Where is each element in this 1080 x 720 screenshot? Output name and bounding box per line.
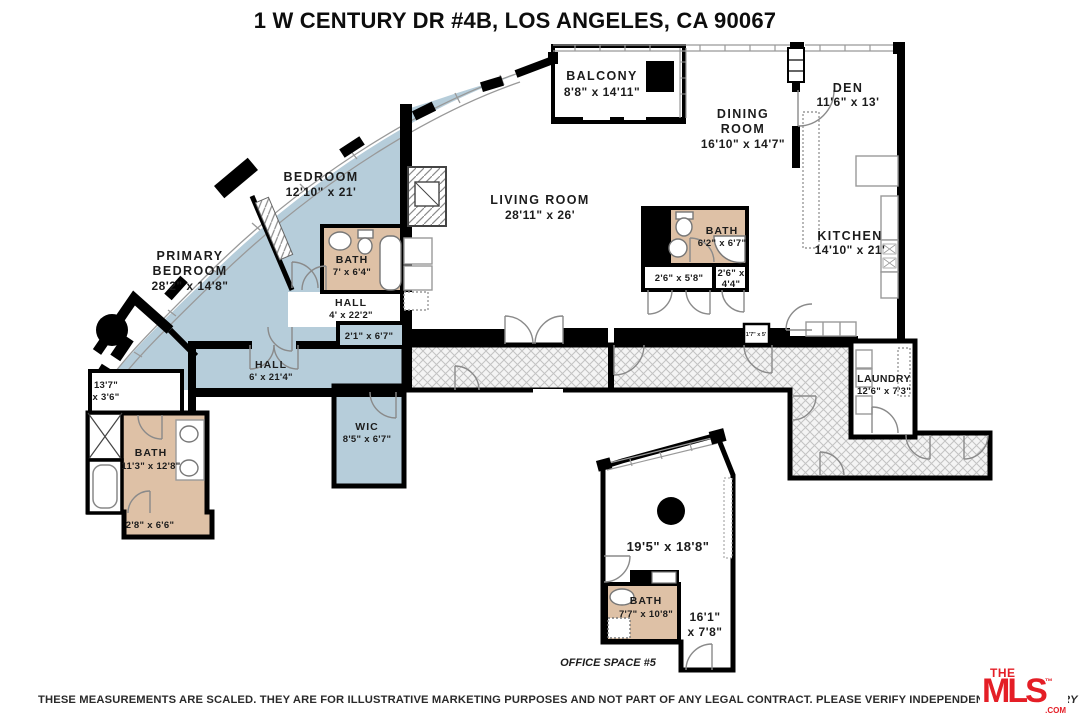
primary-bedroom-label-1: PRIMARY (157, 249, 224, 263)
office-side-dims-2: x 7'8" (688, 625, 723, 639)
bathtub-icon (380, 236, 401, 290)
disclaimer-text: THESE MEASUREMENTS ARE SCALED. THEY ARE … (38, 694, 1007, 706)
office-bath-label: BATH (630, 595, 662, 607)
sink-icon (180, 426, 198, 442)
bath-center-dims: 6'2" x 6'7" (698, 238, 747, 249)
office-bath-dims: 7'7" x 10'8" (619, 609, 673, 620)
bath-center-label: BATH (706, 225, 738, 237)
shower-icon (608, 618, 630, 638)
hall-upper-label: HALL (335, 297, 367, 309)
hall-lower-label: HALL (255, 359, 287, 371)
sink-icon (180, 460, 198, 476)
balcony-column (646, 61, 674, 92)
kitchen-label: KITCHEN (817, 229, 882, 243)
wic-dims: 8'5" x 6'7" (343, 434, 392, 445)
bath-lower-dims: 11'3" x 12'8" (121, 461, 180, 472)
wic-label: WIC (355, 421, 378, 433)
office-side-dims-1: 16'1" (689, 610, 720, 624)
closet-26b-dims-2: 4'4" (722, 279, 741, 290)
office-main-dims: 19'5" x 18'8" (627, 539, 710, 554)
kitchen-dims: 14'10" x 21' (815, 243, 886, 257)
closet-tiny-dims: 1'7" x 5' (746, 332, 767, 338)
linen-closet (88, 413, 122, 460)
mls-logo: THE MLS™ .COM (980, 666, 1068, 716)
primary-bedroom-dims: 28'2" x 14'8" (152, 279, 229, 293)
bath-lower-label: BATH (135, 447, 167, 459)
shaft (408, 167, 446, 226)
dining-label-1: DINING (717, 107, 769, 121)
mls-logo-com: .COM (1045, 706, 1066, 715)
toilet-icon (358, 230, 373, 238)
den-closet (788, 48, 804, 82)
den-label: DEN (833, 81, 864, 95)
mls-logo-mls: MLS (982, 672, 1045, 710)
living-room-label: LIVING ROOM (490, 193, 589, 207)
structural-column (657, 497, 685, 525)
laundry-label: LAUNDRY (857, 373, 911, 385)
bath-upper-dims: 7' x 6'4" (333, 267, 371, 278)
bedroom-label: BEDROOM (283, 170, 358, 184)
laundry-dims: 12'6" x 7'3" (857, 386, 911, 397)
room-fills (96, 75, 990, 537)
living-room-dims: 28'11" x 26' (505, 208, 575, 222)
closet-28-dims: 2'8" x 6'6" (126, 520, 175, 531)
closet-137-dims-2: x 3'6" (92, 392, 119, 403)
closet-26a-dims: 2'6" x 5'8" (655, 273, 704, 284)
office-space-label: OFFICE SPACE #5 (560, 657, 657, 669)
den-dims: 11'6" x 13' (817, 95, 880, 109)
structural-column (96, 314, 128, 346)
dining-dims: 16'10" x 14'7" (701, 137, 785, 151)
floor-plan: BALCONY 8'8" x 14'11" DINING ROOM 16'10"… (0, 0, 1080, 720)
primary-bedroom-label-2: BEDROOM (152, 264, 227, 278)
mls-logo-tm: ™ (1045, 677, 1053, 686)
hall-lower-dims: 6' x 21'4" (249, 372, 293, 383)
floor-plan-page: 1 W CENTURY DR #4B, LOS ANGELES, CA 9006… (0, 0, 1080, 720)
bathtub-lower (88, 460, 122, 513)
sink-icon (329, 232, 351, 250)
closet-137-dims-1: 13'7" (94, 380, 118, 391)
dining-label-2: ROOM (721, 122, 766, 136)
bath-upper-label: BATH (336, 254, 368, 266)
closet-21-dims: 2'1" x 6'7" (345, 331, 394, 342)
disclaimer: THESE MEASUREMENTS ARE SCALED. THEY ARE … (38, 694, 1038, 706)
closet-26b-dims-1: 2'6" x (717, 268, 744, 279)
bath-center-black (643, 208, 673, 266)
sink-icon (669, 239, 687, 257)
bedroom-dims: 12'10" x 21' (286, 185, 357, 199)
balcony-dims: 8'8" x 14'11" (564, 85, 640, 99)
balcony-label: BALCONY (566, 69, 638, 83)
hall-upper-dims: 4' x 22'2" (329, 310, 373, 321)
